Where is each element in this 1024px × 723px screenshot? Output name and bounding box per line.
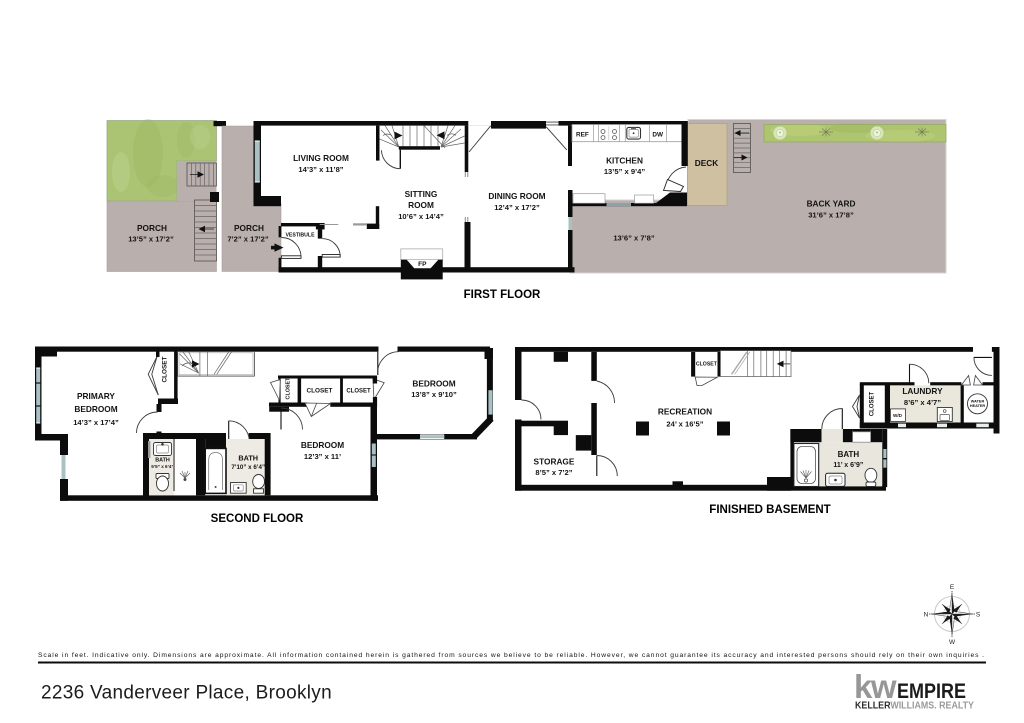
svg-text:HEATER: HEATER bbox=[970, 404, 986, 408]
svg-text:13’5” x 9’4”: 13’5” x 9’4” bbox=[604, 167, 646, 176]
svg-text:Scale in feet. Indicative only: Scale in feet. Indicative only. Dimensio… bbox=[38, 652, 984, 659]
svg-text:ROOM: ROOM bbox=[408, 200, 434, 210]
svg-text:RECREATION: RECREATION bbox=[658, 407, 712, 417]
svg-text:11’ x 6’9”: 11’ x 6’9” bbox=[833, 462, 863, 469]
svg-text:8’5” x 7’2”: 8’5” x 7’2” bbox=[535, 468, 572, 477]
svg-text:13’6” x 7’8”: 13’6” x 7’8” bbox=[613, 234, 655, 243]
svg-text:5’5” x 6’4”: 5’5” x 6’4” bbox=[151, 464, 173, 469]
svg-text:BATH: BATH bbox=[238, 454, 258, 463]
svg-text:E: E bbox=[950, 584, 955, 591]
svg-text:7’10” x 6’4”: 7’10” x 6’4” bbox=[231, 464, 265, 471]
svg-text:WATER: WATER bbox=[971, 399, 985, 403]
svg-text:CLOSET: CLOSET bbox=[696, 361, 718, 367]
svg-text:DECK: DECK bbox=[695, 158, 719, 168]
svg-text:REF: REF bbox=[576, 131, 589, 138]
svg-text:DINING ROOM: DINING ROOM bbox=[488, 191, 545, 201]
svg-text:DW: DW bbox=[652, 131, 664, 138]
svg-text:W/D: W/D bbox=[893, 413, 903, 418]
svg-text:STORAGE: STORAGE bbox=[534, 457, 575, 467]
svg-text:FP: FP bbox=[418, 261, 427, 268]
svg-text:BEDROOM: BEDROOM bbox=[412, 378, 455, 388]
svg-text:CLOSET: CLOSET bbox=[307, 387, 333, 394]
svg-text:31’6” x 17’8”: 31’6” x 17’8” bbox=[808, 211, 854, 220]
svg-text:S: S bbox=[976, 611, 981, 618]
svg-text:2236 Vanderveer Place, Brookly: 2236 Vanderveer Place, Brooklyn bbox=[41, 683, 332, 704]
svg-text:CLOSET: CLOSET bbox=[285, 377, 291, 400]
svg-text:KELLERWILLIAMS. REALTY: KELLERWILLIAMS. REALTY bbox=[855, 700, 974, 712]
svg-text:BATH: BATH bbox=[155, 458, 170, 464]
svg-text:BACK YARD: BACK YARD bbox=[807, 199, 856, 209]
svg-text:12’3” x 11’: 12’3” x 11’ bbox=[304, 452, 341, 461]
svg-text:N: N bbox=[924, 611, 929, 618]
svg-text:14’3” x 11’8”: 14’3” x 11’8” bbox=[298, 165, 343, 174]
svg-text:14’3” x 17’4”: 14’3” x 17’4” bbox=[73, 418, 119, 427]
svg-text:BATH: BATH bbox=[838, 450, 860, 459]
svg-text:LIVING ROOM: LIVING ROOM bbox=[293, 153, 349, 163]
svg-text:7’2” x 17’2”: 7’2” x 17’2” bbox=[227, 235, 269, 244]
svg-text:CLOSET: CLOSET bbox=[346, 388, 371, 394]
svg-text:PORCH: PORCH bbox=[234, 223, 264, 233]
svg-text:FIRST FLOOR: FIRST FLOOR bbox=[464, 289, 541, 301]
svg-text:24’ x 16’5”: 24’ x 16’5” bbox=[666, 420, 703, 429]
svg-text:CLOSET: CLOSET bbox=[870, 392, 876, 417]
svg-text:KITCHEN: KITCHEN bbox=[606, 156, 643, 166]
svg-text:W: W bbox=[949, 639, 956, 646]
svg-text:VESTIBULE: VESTIBULE bbox=[285, 233, 315, 239]
svg-text:BEDROOM: BEDROOM bbox=[301, 440, 344, 450]
svg-text:13’8” x 9’10”: 13’8” x 9’10” bbox=[411, 390, 457, 399]
svg-text:10’6” x 14’4”: 10’6” x 14’4” bbox=[398, 212, 444, 221]
svg-text:8’6” x 4’7”: 8’6” x 4’7” bbox=[904, 398, 941, 407]
svg-text:PORCH: PORCH bbox=[137, 223, 167, 233]
svg-text:13’5” x 17’2”: 13’5” x 17’2” bbox=[128, 235, 174, 244]
svg-text:SECOND FLOOR: SECOND FLOOR bbox=[211, 513, 304, 525]
svg-text:BEDROOM: BEDROOM bbox=[74, 404, 117, 414]
svg-text:SITTING: SITTING bbox=[405, 189, 438, 199]
svg-text:LAUNDRY: LAUNDRY bbox=[902, 386, 943, 396]
svg-text:PRIMARY: PRIMARY bbox=[77, 391, 115, 401]
svg-text:CLOSET: CLOSET bbox=[161, 356, 168, 382]
svg-text:FINISHED BASEMENT: FINISHED BASEMENT bbox=[709, 504, 830, 516]
svg-text:12’4” x 17’2”: 12’4” x 17’2” bbox=[494, 203, 540, 212]
